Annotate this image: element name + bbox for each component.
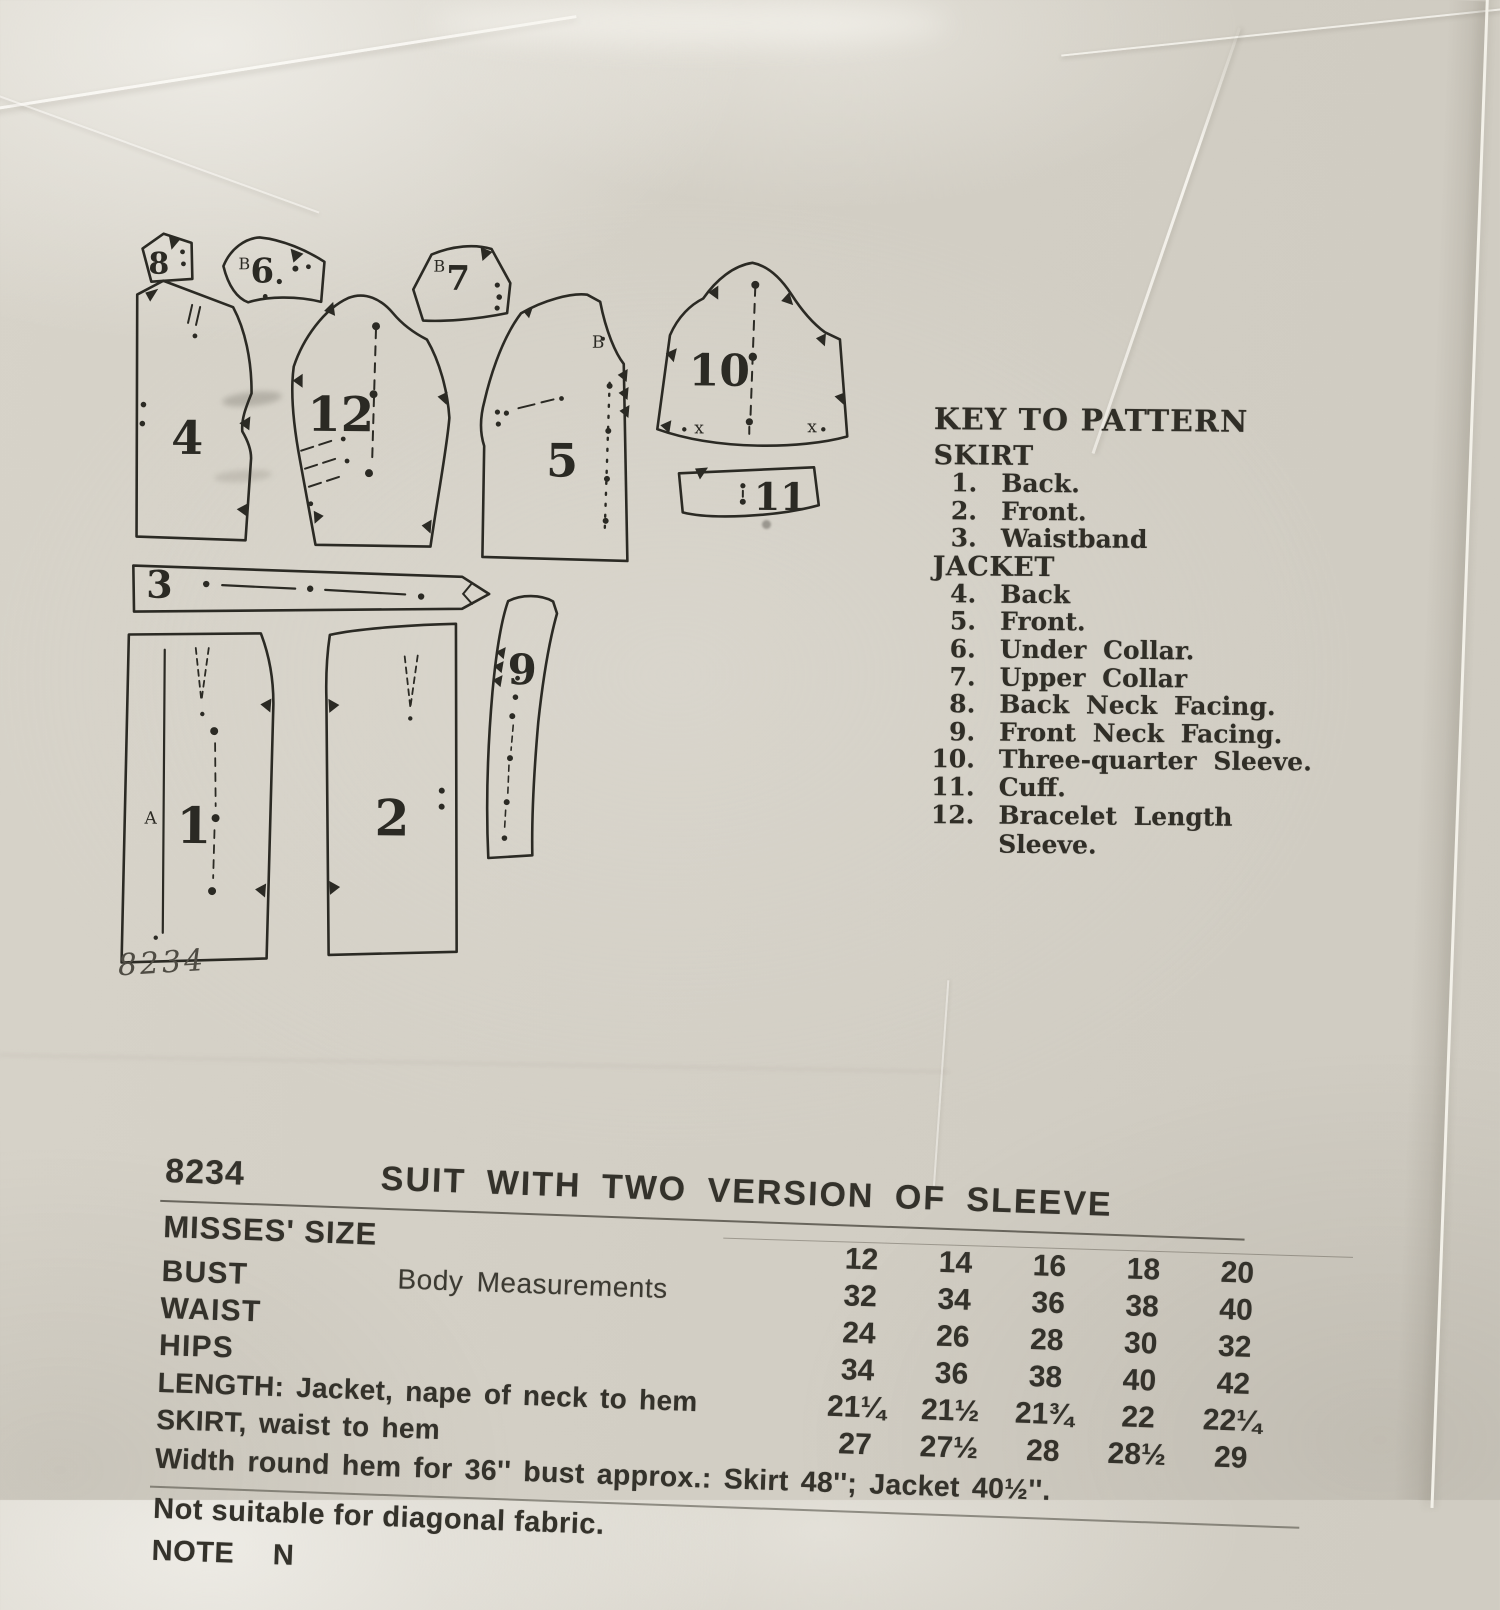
pattern-piece-5: B 5 — [480, 294, 630, 561]
cell-value: 28 — [995, 1433, 1090, 1470]
key-item: 11. Cuff. — [919, 772, 1339, 803]
key-item-number: 12. — [918, 800, 975, 858]
piece-10-x-mark: x — [694, 418, 704, 438]
key-item: 2. Front. — [921, 496, 1341, 527]
piece-6-letter: B — [238, 254, 250, 273]
row-label-text: BUST — [161, 1255, 249, 1291]
piece-1-number: 1 — [176, 796, 211, 855]
cell-value: 29 — [1183, 1440, 1278, 1477]
paper-crease — [933, 980, 950, 1190]
paper-crease — [430, 0, 950, 46]
table-title: SUIT WITH TWO VERSION OF SLEEVE — [380, 1160, 1113, 1225]
paper-crease — [0, 15, 577, 112]
size-value: 14 — [908, 1245, 1003, 1282]
key-item-number: 1. — [921, 468, 977, 497]
piece-8-number: 8 — [148, 247, 169, 282]
pattern-piece-1: A 1 — [122, 632, 274, 963]
piece-6-number: 6 — [250, 251, 274, 291]
pattern-piece-7: B 7 — [413, 246, 511, 322]
piece-5-number: 5 — [546, 433, 578, 487]
cell-value: 38 — [998, 1359, 1093, 1396]
key-item: 12. Bracelet Length Sleeve. — [918, 800, 1338, 831]
paper-fold-line — [1430, 0, 1489, 1508]
cell-value: 40 — [1092, 1362, 1187, 1399]
cell-value: 21¼ — [809, 1389, 904, 1426]
key-item: 8. Back Neck Facing. — [919, 689, 1339, 720]
pattern-pieces-diagram: 8 B 6 B 7 4 — [85, 212, 891, 1018]
key-item: 1. Back. — [921, 468, 1341, 499]
key-item-number: 4. — [920, 579, 976, 608]
cell-value: 38 — [1095, 1288, 1190, 1325]
cell-value: 28 — [999, 1322, 1094, 1359]
cell-value: 34 — [907, 1282, 1002, 1319]
key-item: 10. Three-quarter Sleeve. — [919, 744, 1339, 775]
pattern-instruction-sheet-photo: { "colors": { "paper": "#d3cfc5", "ink":… — [0, 0, 1500, 1500]
size-value: 20 — [1190, 1255, 1285, 1292]
key-item: 4. Back — [920, 579, 1340, 610]
key-heading-skirt: SKIRT — [933, 440, 1341, 472]
key-to-pattern: KEY TO PATTERN SKIRT 1. Back. 2. Front. … — [918, 402, 1342, 831]
pattern-piece-2: 2 — [324, 623, 459, 956]
cell-value: 26 — [905, 1319, 1000, 1356]
key-item-number: 10. — [919, 744, 975, 773]
piece-2-number: 2 — [374, 788, 409, 847]
paper-crease — [0, 1054, 950, 1074]
pattern-piece-8: 8 — [142, 234, 192, 282]
piece-7-letter: B — [433, 257, 445, 276]
key-item-number: 7. — [919, 662, 975, 691]
cell-value: 28½ — [1089, 1436, 1184, 1473]
size-table: 8234 SUIT WITH TWO VERSION OF SLEEVE MIS… — [151, 1152, 1355, 1610]
key-item: 3. Waistband — [921, 523, 1341, 554]
cell-value: 30 — [1093, 1325, 1188, 1362]
pattern-number: 8234 — [165, 1152, 246, 1194]
cell-value: 34 — [810, 1352, 905, 1389]
key-item-label: Waistband — [1001, 524, 1341, 556]
piece-9-number: 9 — [507, 645, 537, 694]
pattern-piece-9: 9 — [487, 596, 557, 859]
piece-11-number: 11 — [754, 474, 807, 519]
piece-10-number: 10 — [689, 345, 751, 396]
piece-10-x-mark: x — [807, 417, 817, 437]
key-item-number: 5. — [920, 606, 976, 635]
piece-7-number: 7 — [446, 259, 470, 299]
key-item-number: 2. — [921, 496, 977, 525]
cell-value: 27½ — [901, 1430, 996, 1467]
paper-crease — [1092, 28, 1241, 454]
key-item: 7. Upper Collar — [919, 662, 1339, 693]
key-item: 9. Front Neck Facing. — [919, 717, 1339, 748]
key-item: 5. Front. — [920, 606, 1340, 637]
key-item-label: Bracelet Length Sleeve. — [998, 800, 1338, 861]
paper-crease — [0, 88, 319, 213]
size-value: 18 — [1096, 1251, 1191, 1288]
size-value: 16 — [1002, 1248, 1097, 1285]
pattern-piece-6: B 6 — [223, 237, 324, 303]
key-item-number: 11. — [919, 772, 975, 801]
pattern-piece-10: x x 10 — [657, 262, 848, 446]
key-item-number: 8. — [919, 689, 975, 718]
cell-value: 21½ — [903, 1393, 998, 1430]
cell-value: 21¾ — [997, 1396, 1092, 1433]
pattern-piece-4: 4 — [136, 281, 253, 541]
cell-value: 27 — [807, 1426, 902, 1463]
pattern-piece-3: 3 — [133, 562, 489, 614]
key-item-number: 6. — [920, 634, 976, 663]
paper-fold-shadow — [1393, 0, 1488, 1500]
cell-value: 42 — [1186, 1366, 1281, 1403]
handwritten-pattern-number: 8234 — [117, 943, 207, 983]
cell-value: 22 — [1091, 1399, 1186, 1436]
piece-3-number: 3 — [146, 562, 173, 607]
cell-value: 40 — [1188, 1292, 1283, 1329]
piece-4-number: 4 — [171, 411, 203, 465]
piece-1-letter: A — [144, 809, 158, 829]
piece-5-letter: B — [592, 333, 605, 353]
pattern-piece-11: 11 — [679, 466, 819, 519]
pattern-piece-12: 12 — [291, 295, 450, 547]
paper-crease — [1061, 5, 1500, 56]
cell-value: 36 — [904, 1356, 999, 1393]
piece-12-number: 12 — [307, 387, 374, 443]
key-heading-jacket: JACKET — [932, 551, 1340, 583]
size-value: 12 — [814, 1241, 909, 1278]
key-item-number: 9. — [919, 717, 975, 746]
cell-value: 22¼ — [1184, 1403, 1279, 1440]
key-item: 6. Under Collar. — [920, 634, 1340, 665]
cell-value: 24 — [811, 1315, 906, 1352]
cell-value: 32 — [1187, 1329, 1282, 1366]
key-title: KEY TO PATTERN — [934, 402, 1342, 441]
cell-value: 32 — [813, 1278, 908, 1315]
cell-value: 36 — [1001, 1285, 1096, 1322]
key-item-number: 3. — [921, 523, 977, 552]
